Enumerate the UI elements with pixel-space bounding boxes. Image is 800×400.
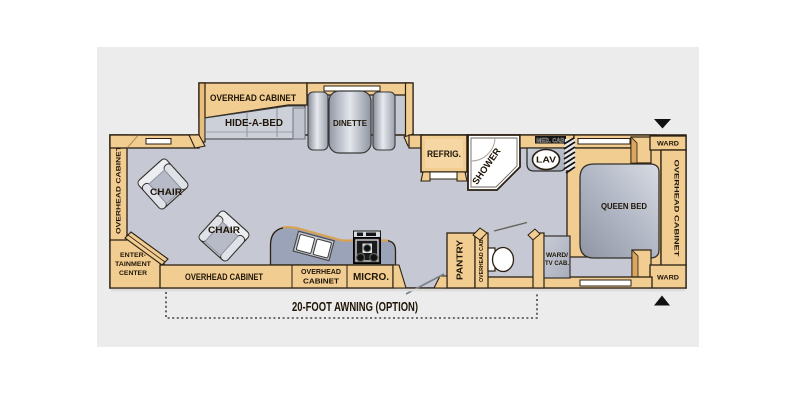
svg-text:LAV: LAV bbox=[536, 156, 557, 165]
svg-text:OVERHEAD: OVERHEAD bbox=[301, 267, 342, 276]
svg-text:WARD/: WARD/ bbox=[546, 253, 568, 259]
svg-text:ENTER-: ENTER- bbox=[120, 252, 146, 259]
svg-text:OVERHEAD CABINET: OVERHEAD CABINET bbox=[116, 145, 123, 234]
svg-text:OVERHEAD CABINET: OVERHEAD CABINET bbox=[210, 93, 296, 104]
svg-text:TAINMENT: TAINMENT bbox=[115, 261, 151, 268]
svg-text:20-FOOT AWNING (OPTION): 20-FOOT AWNING (OPTION) bbox=[292, 300, 418, 314]
svg-text:DINETTE: DINETTE bbox=[333, 119, 368, 128]
svg-text:WARD: WARD bbox=[657, 142, 680, 148]
svg-text:QUEEN BED: QUEEN BED bbox=[601, 201, 647, 211]
svg-text:CABINET: CABINET bbox=[303, 277, 339, 286]
svg-text:CENTER: CENTER bbox=[119, 270, 148, 277]
svg-text:PANTRY: PANTRY bbox=[455, 240, 465, 280]
svg-text:MICRO.: MICRO. bbox=[353, 272, 389, 283]
svg-text:OVERHEAD CAB.: OVERHEAD CAB. bbox=[479, 238, 485, 282]
svg-text:CHAIR: CHAIR bbox=[150, 187, 182, 198]
svg-text:HIDE-A-BED: HIDE-A-BED bbox=[225, 118, 283, 129]
svg-text:CHAIR: CHAIR bbox=[208, 225, 240, 236]
svg-text:MED. CAB: MED. CAB bbox=[537, 138, 565, 145]
svg-text:WARD: WARD bbox=[657, 276, 680, 282]
svg-text:OVERHEAD CABINET: OVERHEAD CABINET bbox=[673, 160, 680, 257]
svg-text:OVERHEAD CABINET: OVERHEAD CABINET bbox=[185, 272, 263, 283]
svg-text:TV CAB.: TV CAB. bbox=[545, 261, 569, 267]
svg-text:REFRIG.: REFRIG. bbox=[427, 149, 461, 160]
